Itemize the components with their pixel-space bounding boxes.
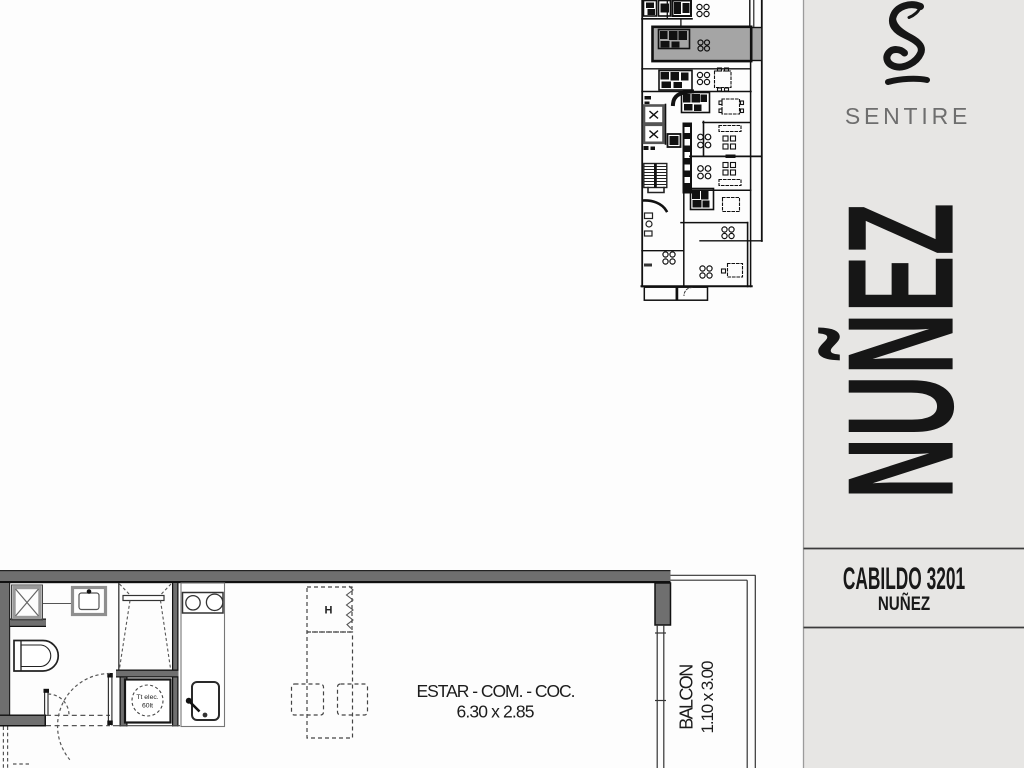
svg-text:60lt: 60lt — [142, 703, 153, 710]
svg-text:NUÑEZ: NUÑEZ — [817, 203, 985, 499]
svg-text:BALCON: BALCON — [677, 664, 697, 730]
svg-text:1.10 x 3.00: 1.10 x 3.00 — [698, 661, 717, 734]
svg-text:H: H — [325, 605, 333, 617]
svg-text:SENTIRE: SENTIRE — [845, 103, 971, 129]
svg-text:NUÑEZ: NUÑEZ — [878, 591, 931, 614]
svg-text:ESTAR - COM. - COC.: ESTAR - COM. - COC. — [417, 681, 576, 701]
svg-text:Tt elec.: Tt elec. — [136, 694, 158, 701]
svg-text:6.30 x 2.85: 6.30 x 2.85 — [457, 702, 535, 722]
